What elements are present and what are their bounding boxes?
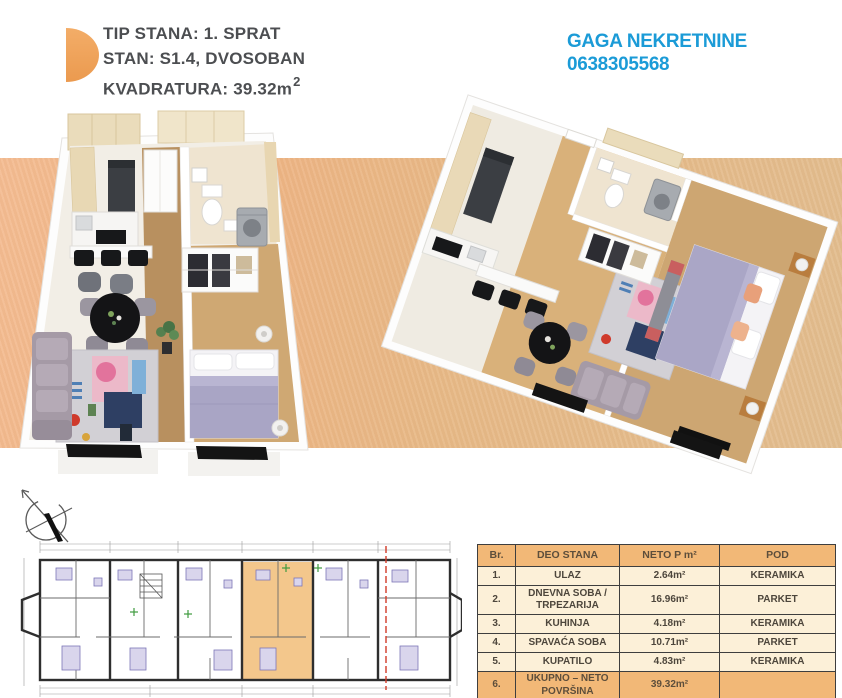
spec-table: Br. DEO STANA NETO P m² POD 1. ULAZ 2.64… bbox=[477, 544, 836, 698]
table-row-dnevna-soba: 2. DNEVNA SOBA / TRPEZARIJA 16.96m² PARK… bbox=[478, 586, 836, 615]
north-compass-icon bbox=[16, 486, 78, 546]
shelf-unit-group bbox=[182, 248, 258, 292]
door-sill bbox=[66, 444, 142, 458]
col-header-neto: NETO P m² bbox=[620, 545, 720, 567]
table-row-kuhinja: 3. KUHINJA 4.18m² KERAMIKA bbox=[478, 615, 836, 634]
cell-deo: SPAVAĆA SOBA bbox=[516, 634, 620, 653]
col-header-br: Br. bbox=[478, 545, 516, 567]
stan-line: STAN: S1.4, DVOSOBAN bbox=[103, 46, 305, 71]
door-sill bbox=[196, 446, 268, 460]
cell-neto: 4.83m² bbox=[620, 653, 720, 672]
cell-neto: 10.71m² bbox=[620, 634, 720, 653]
cell-neto: 16.96m² bbox=[620, 586, 720, 615]
stair-symbol bbox=[140, 574, 162, 598]
cell-pod: KERAMIKA bbox=[720, 653, 836, 672]
cell-neto: 4.18m² bbox=[620, 615, 720, 634]
cell-br: 5. bbox=[478, 653, 516, 672]
flyer-canvas: TIP STANA: 1. SPRAT STAN: S1.4, DVOSOBAN… bbox=[0, 0, 842, 698]
kvadratura-line: KVADRATURA: 39.32m2 bbox=[103, 71, 305, 102]
cell-deo: DNEVNA SOBA / TRPEZARIJA bbox=[516, 586, 620, 615]
table-row-kupatilo: 5. KUPATILO 4.83m² KERAMIKA bbox=[478, 653, 836, 672]
apartment-title-block: TIP STANA: 1. SPRAT STAN: S1.4, DVOSOBAN… bbox=[103, 21, 305, 102]
dimension-lines bbox=[24, 541, 457, 697]
col-header-pod: POD bbox=[720, 545, 836, 567]
cell-deo: ULAZ bbox=[516, 567, 620, 586]
tip-stana-line: TIP STANA: 1. SPRAT bbox=[103, 21, 305, 46]
agency-contact-block: GAGA NEKRETNINE 0638305568 bbox=[567, 30, 747, 76]
cell-pod: PARKET bbox=[720, 634, 836, 653]
cell-pod: PARKET bbox=[720, 586, 836, 615]
logo-half-disc-icon bbox=[66, 28, 99, 82]
table-row-ulaz: 1. ULAZ 2.64m² KERAMIKA bbox=[478, 567, 836, 586]
agency-name: GAGA NEKRETNINE bbox=[567, 30, 747, 53]
table-header-row: Br. DEO STANA NETO P m² POD bbox=[478, 545, 836, 567]
cell-br: 2. bbox=[478, 586, 516, 615]
table-row-ukupno: 6. UKUPNO – NETO POVRŠINA 39.32m² bbox=[478, 672, 836, 698]
cell-pod: KERAMIKA bbox=[720, 615, 836, 634]
cell-br: 3. bbox=[478, 615, 516, 634]
cell-deo: UKUPNO – NETO POVRŠINA bbox=[516, 672, 620, 698]
cell-deo: KUPATILO bbox=[516, 653, 620, 672]
agency-phone: 0638305568 bbox=[567, 53, 747, 76]
floorplan-2d bbox=[10, 538, 462, 698]
col-header-deo-stana: DEO STANA bbox=[516, 545, 620, 567]
table-row-spavaca-soba: 4. SPAVAĆA SOBA 10.71m² PARKET bbox=[478, 634, 836, 653]
cell-pod: KERAMIKA bbox=[720, 567, 836, 586]
floorplan-3d-left bbox=[8, 104, 326, 494]
cell-pod bbox=[720, 672, 836, 698]
cell-br: 6. bbox=[478, 672, 516, 698]
cell-neto: 2.64m² bbox=[620, 567, 720, 586]
cell-neto: 39.32m² bbox=[620, 672, 720, 698]
cell-deo: KUHINJA bbox=[516, 615, 620, 634]
floorplan-3d-right bbox=[378, 92, 840, 512]
cell-br: 1. bbox=[478, 567, 516, 586]
square-sup: 2 bbox=[293, 74, 300, 89]
cell-br: 4. bbox=[478, 634, 516, 653]
